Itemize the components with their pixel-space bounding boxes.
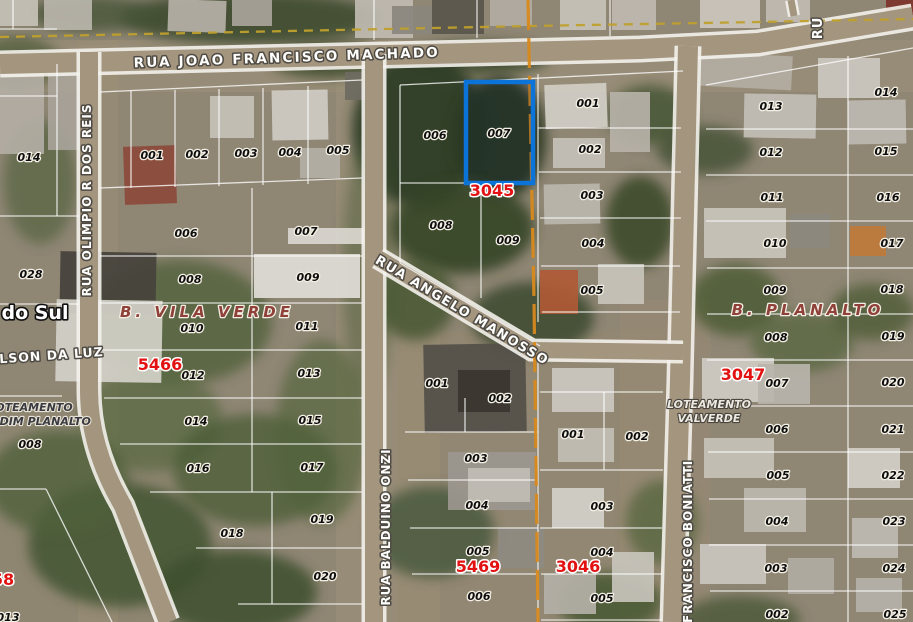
lot-number-label: 007 <box>488 127 511 140</box>
lot-number-label: 002 <box>186 148 209 161</box>
lot-number-label: 006 <box>175 227 198 240</box>
lot-number-label: 018 <box>881 283 904 296</box>
lot-number-label: 002 <box>626 430 649 443</box>
lot-number-label: 001 <box>577 97 600 110</box>
lot-number-label: 008 <box>179 273 202 286</box>
block-number-label: 3047 <box>721 365 766 384</box>
road-surface <box>791 0 794 16</box>
lot-number-label: 019 <box>882 330 905 343</box>
building-roof <box>44 0 92 30</box>
lot-number-label: 016 <box>877 191 900 204</box>
lot-number-label: 014 <box>18 151 41 164</box>
lot-number-label: 003 <box>765 562 788 575</box>
map-viewport[interactable]: 0140280080130010020030040050060070080090… <box>0 0 913 622</box>
lot-number-label: 008 <box>430 219 453 232</box>
lot-number-label: 005 <box>581 284 604 297</box>
lot-number-label: 008 <box>765 331 788 344</box>
vegetation <box>606 176 674 268</box>
lot-number-label: 003 <box>591 500 614 513</box>
subdivision-label: VALVERDE <box>678 412 741 425</box>
street-name-label: R. FRANCISCO BONIATTI <box>681 460 695 622</box>
building-roof <box>790 214 830 248</box>
building-roof <box>167 0 226 33</box>
subdivision-label: LOTEAMENTO <box>667 398 751 411</box>
street-name-label: RUA BALDUINO ONZI <box>379 448 393 605</box>
building-roof <box>540 270 578 314</box>
lot-number-label: 007 <box>295 225 318 238</box>
lot-number-label: 010 <box>181 322 204 335</box>
building-roof <box>700 544 766 584</box>
lot-number-label: 005 <box>327 144 350 157</box>
lot-number-label: 025 <box>884 608 907 621</box>
building-roof <box>856 578 902 612</box>
lot-number-label: 001 <box>141 149 164 162</box>
lot-number-label: 001 <box>426 377 449 390</box>
building-roof <box>458 370 510 412</box>
lot-number-label: 020 <box>882 376 905 389</box>
lot-number-label: 016 <box>187 462 210 475</box>
subdivision-label: RDIM PLANALTO <box>0 415 91 428</box>
building-roof <box>610 92 650 152</box>
lot-number-label: 006 <box>468 590 491 603</box>
lot-number-label: 020 <box>314 570 337 583</box>
building-roof <box>704 208 786 258</box>
block-number-label: 58 <box>0 570 14 589</box>
lot-number-label: 003 <box>235 147 258 160</box>
lot-number-label: 002 <box>489 392 512 405</box>
lot-number-label: 007 <box>766 377 789 390</box>
block-number-label: 3046 <box>556 557 601 576</box>
lot-number-label: 011 <box>761 191 784 204</box>
building-roof <box>612 552 654 602</box>
lot-number-label: 024 <box>883 562 906 575</box>
city-name-label: s do Sul <box>0 302 68 324</box>
building-roof <box>0 0 38 26</box>
building-roof <box>848 99 907 144</box>
lot-number-label: 013 <box>0 611 20 622</box>
lot-number-label: 010 <box>764 237 787 250</box>
lot-number-label: 013 <box>760 100 783 113</box>
building-roof <box>210 96 254 138</box>
lot-number-label: 009 <box>764 284 787 297</box>
block-number-label: 5469 <box>456 557 501 576</box>
building-roof <box>392 6 434 34</box>
lot-number-label: 009 <box>497 234 520 247</box>
lot-number-label: 015 <box>875 145 898 158</box>
lot-number-label: 005 <box>591 592 614 605</box>
building-roof <box>598 264 644 304</box>
lot-number-label: 003 <box>581 189 604 202</box>
lot-number-label: 004 <box>279 146 302 159</box>
lot-number-label: 017 <box>881 237 904 250</box>
lot-number-label: 022 <box>882 469 905 482</box>
building-roof <box>818 58 880 98</box>
building-roof <box>468 468 530 502</box>
lot-number-label: 001 <box>562 428 585 441</box>
lot-number-label: 009 <box>297 271 320 284</box>
building-roof <box>612 0 656 30</box>
lot-number-label: 014 <box>185 415 208 428</box>
building-roof <box>490 0 532 26</box>
building-roof <box>848 448 900 488</box>
district-label: B. PLANALTO <box>732 301 885 319</box>
building-roof <box>544 574 596 614</box>
lot-number-label: 013 <box>298 367 321 380</box>
cadastral-map-svg: 0140280080130010020030040050060070080090… <box>0 0 913 622</box>
lot-number-label: 012 <box>182 369 205 382</box>
lot-number-label: 019 <box>311 513 334 526</box>
street-name-label: RU <box>811 17 826 40</box>
lot-number-label: 004 <box>466 499 489 512</box>
lot-number-label: 011 <box>296 320 319 333</box>
lot-number-label: 002 <box>766 608 789 621</box>
block-number-label: 5466 <box>138 355 183 374</box>
building-roof <box>552 368 614 412</box>
building-roof <box>788 558 834 594</box>
lot-number-label: 003 <box>465 452 488 465</box>
building-roof <box>704 438 774 478</box>
subdivision-label: OTEAMENTO <box>0 401 73 414</box>
lot-number-label: 004 <box>582 237 605 250</box>
lot-number-label: 023 <box>883 515 906 528</box>
lot-number-label: 008 <box>19 438 42 451</box>
lot-number-label: 028 <box>20 268 43 281</box>
lot-number-label: 017 <box>301 461 324 474</box>
lot-number-label: 012 <box>760 146 783 159</box>
lot-number-label: 018 <box>221 527 244 540</box>
lot-number-label: 006 <box>766 423 789 436</box>
building-roof <box>0 66 44 154</box>
block-number-label: 3045 <box>470 181 515 200</box>
lot-number-label: 002 <box>579 143 602 156</box>
building-roof <box>272 90 329 141</box>
lot-number-label: 021 <box>882 423 905 436</box>
street-name-label: RUA OLIMPIO R DOS REIS <box>80 104 94 297</box>
lot-number-label: 005 <box>767 469 790 482</box>
lot-number-label: 006 <box>424 129 447 142</box>
lot-number-label: 014 <box>875 86 898 99</box>
lot-number-label: 004 <box>766 515 789 528</box>
building-roof <box>232 0 272 26</box>
lot-number-label: 015 <box>299 414 322 427</box>
district-label: B. VILA VERDE <box>120 303 294 321</box>
vegetation <box>657 126 753 174</box>
